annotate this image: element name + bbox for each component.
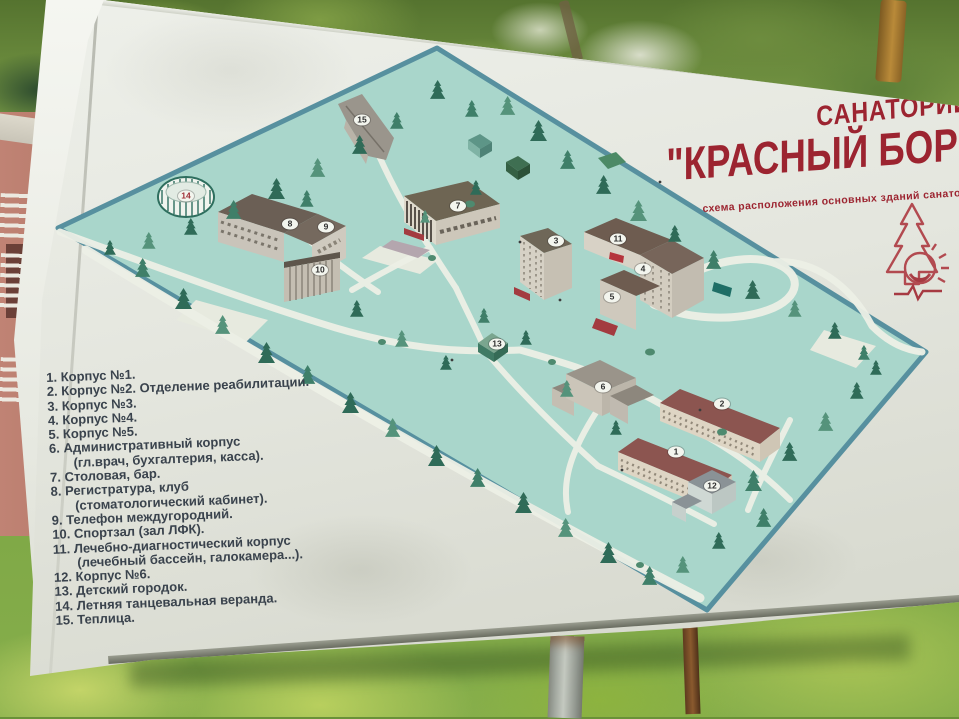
map-building-label-14: 14 [178, 191, 194, 202]
sign-title-main: "КРАСНЫЙ БОР" [666, 116, 959, 192]
corpus-6-building [672, 470, 736, 522]
map-building-label-9: 9 [318, 222, 334, 233]
map-building-label-12: 12 [704, 481, 720, 492]
sign-board: 1 2 3 4 5 6 7 8 9 10 11 12 13 14 15 САНА… [0, 0, 959, 717]
photo-of-sanatorium-map-sign: { "sign": { "title_top": "САНАТОРИЙ", "t… [0, 0, 959, 717]
red-car [609, 252, 624, 263]
map-legend: 1. Корпус №1. 2. Корпус №2. Отделение ре… [46, 358, 400, 628]
shed-teal [468, 134, 492, 158]
map-building-label-1: 1 [668, 447, 684, 458]
map-building-label-6: 6 [595, 382, 611, 393]
map-building-label-3: 3 [548, 236, 564, 247]
sign-post-metal [548, 635, 585, 718]
shed-green [506, 156, 530, 180]
map-building-label-5: 5 [604, 292, 620, 303]
sign-post-wood [682, 624, 700, 714]
map-building-label-13: 13 [489, 339, 505, 350]
sanatorium-logo [866, 198, 958, 308]
map-building-label-15: 15 [354, 115, 370, 126]
map-building-label-8: 8 [282, 219, 298, 230]
club-building [218, 194, 346, 302]
map-bushes [378, 201, 727, 569]
teal-car [712, 282, 732, 297]
map-plazas [176, 246, 876, 368]
map-building-label-7: 7 [450, 201, 466, 212]
shed-flat [598, 152, 626, 169]
diagnostic-complex [584, 218, 704, 336]
map-people-dots [451, 181, 702, 472]
map-building-label-4: 4 [635, 264, 651, 275]
greenhouse-building [338, 94, 394, 164]
map-building-label-10: 10 [312, 265, 328, 276]
map-building-label-11: 11 [610, 234, 626, 245]
dining-building [382, 181, 500, 258]
map-building-label-2: 2 [714, 399, 730, 410]
